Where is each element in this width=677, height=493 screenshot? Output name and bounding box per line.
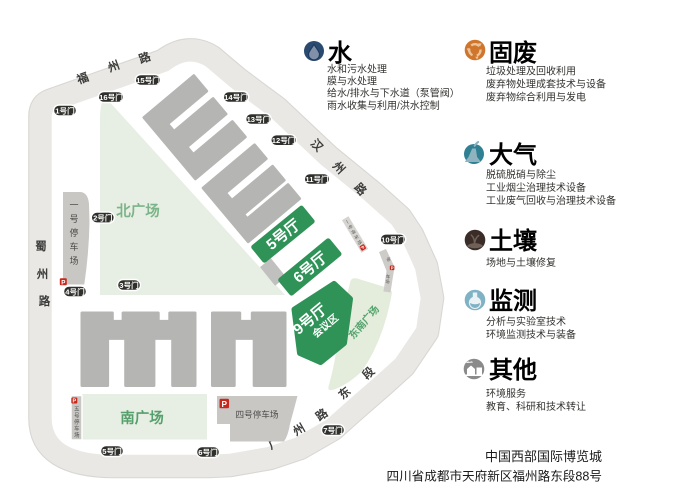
svg-text:6号门: 6号门 <box>198 447 218 457</box>
svg-text:膜与水处理: 膜与水处理 <box>327 76 377 88</box>
svg-text:P: P <box>61 279 65 286</box>
svg-text:车: 车 <box>74 425 80 433</box>
svg-text:垃圾处理及回收利用: 垃圾处理及回收利用 <box>486 65 576 78</box>
svg-text:场: 场 <box>385 278 389 285</box>
svg-text:7号门: 7号门 <box>323 425 343 435</box>
svg-text:停: 停 <box>74 418 80 426</box>
svg-text:10号门: 10号门 <box>381 234 405 244</box>
svg-text:蜀: 蜀 <box>35 240 47 253</box>
svg-text:其他: 其他 <box>489 357 537 384</box>
svg-text:教育、科研和技术转让: 教育、科研和技术转让 <box>486 400 586 413</box>
svg-text:水: 水 <box>328 40 353 67</box>
svg-text:环境监测技术与装备: 环境监测技术与装备 <box>486 328 576 341</box>
svg-text:停: 停 <box>69 227 78 238</box>
svg-text:12号门: 12号门 <box>272 135 296 145</box>
svg-text:废弃物综合利用与发电: 废弃物综合利用与发电 <box>486 91 586 104</box>
svg-text:环境服务: 环境服务 <box>486 387 526 400</box>
svg-text:场地与土壤修复: 场地与土壤修复 <box>486 256 556 269</box>
svg-text:P: P <box>72 399 76 405</box>
svg-text:水和污水处理: 水和污水处理 <box>327 64 387 76</box>
svg-text:场: 场 <box>69 256 78 266</box>
svg-text:一: 一 <box>69 200 78 210</box>
svg-text:废弃物处理成套技术与设备: 废弃物处理成套技术与设备 <box>486 78 606 91</box>
svg-text:3号门: 3号门 <box>119 280 139 290</box>
svg-text:雨水收集与利用/洪水控制: 雨水收集与利用/洪水控制 <box>327 99 440 112</box>
svg-text:4号门: 4号门 <box>65 287 85 297</box>
svg-text:2号门: 2号门 <box>93 213 113 223</box>
svg-text:16号门: 16号门 <box>99 92 123 102</box>
svg-text:场: 场 <box>74 431 80 439</box>
svg-text:脱硫脱硝与除尘: 脱硫脱硝与除尘 <box>486 168 556 181</box>
svg-text:四川省成都市天府新区福州路东段88号: 四川省成都市天府新区福州路东段88号 <box>386 469 602 484</box>
svg-text:14号门: 14号门 <box>224 92 248 102</box>
svg-text:1号门: 1号门 <box>55 106 75 116</box>
svg-text:车: 车 <box>69 241 78 252</box>
svg-text:五: 五 <box>74 406 80 413</box>
svg-text:号: 号 <box>74 413 80 420</box>
svg-text:给水/排水与下水道（泵管阀）: 给水/排水与下水道（泵管阀） <box>327 87 460 100</box>
svg-text:四号停车场: 四号停车场 <box>236 409 279 420</box>
svg-text:大气: 大气 <box>489 141 537 169</box>
svg-text:11号门: 11号门 <box>305 174 329 184</box>
svg-text:工业废气回收与治理技术设备: 工业废气回收与治理技术设备 <box>486 194 616 207</box>
svg-text:监测: 监测 <box>489 288 537 315</box>
svg-text:工业烟尘治理技术设备: 工业烟尘治理技术设备 <box>486 181 586 194</box>
svg-text:路: 路 <box>39 294 51 308</box>
svg-text:北广场: 北广场 <box>116 202 160 220</box>
svg-text:15号门: 15号门 <box>136 75 160 85</box>
svg-text:州: 州 <box>36 268 49 281</box>
svg-text:P: P <box>221 400 227 409</box>
svg-text:13号门: 13号门 <box>247 114 271 124</box>
svg-text:固废: 固废 <box>489 39 537 67</box>
svg-text:5号门: 5号门 <box>102 446 122 456</box>
svg-text:土壤: 土壤 <box>489 227 538 255</box>
svg-text:中国西部国际博览城: 中国西部国际博览城 <box>485 449 602 464</box>
svg-text:停: 停 <box>386 256 390 263</box>
svg-text:南广场: 南广场 <box>120 409 164 427</box>
svg-text:号: 号 <box>69 214 78 224</box>
svg-text:P: P <box>391 266 394 271</box>
svg-text:分析与实验室技术: 分析与实验室技术 <box>486 315 566 328</box>
